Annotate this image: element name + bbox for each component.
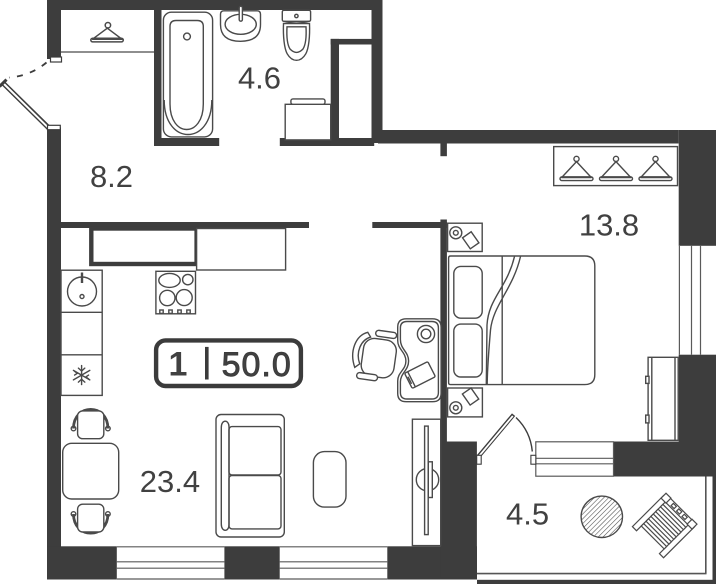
svg-text:4.5: 4.5 (506, 497, 549, 532)
svg-text:50.0: 50.0 (222, 346, 292, 384)
svg-text:8.2: 8.2 (90, 159, 133, 194)
svg-text:4.6: 4.6 (238, 61, 281, 96)
svg-text:23.4: 23.4 (140, 464, 200, 499)
svg-text:13.8: 13.8 (579, 208, 639, 243)
svg-text:1: 1 (169, 346, 188, 384)
